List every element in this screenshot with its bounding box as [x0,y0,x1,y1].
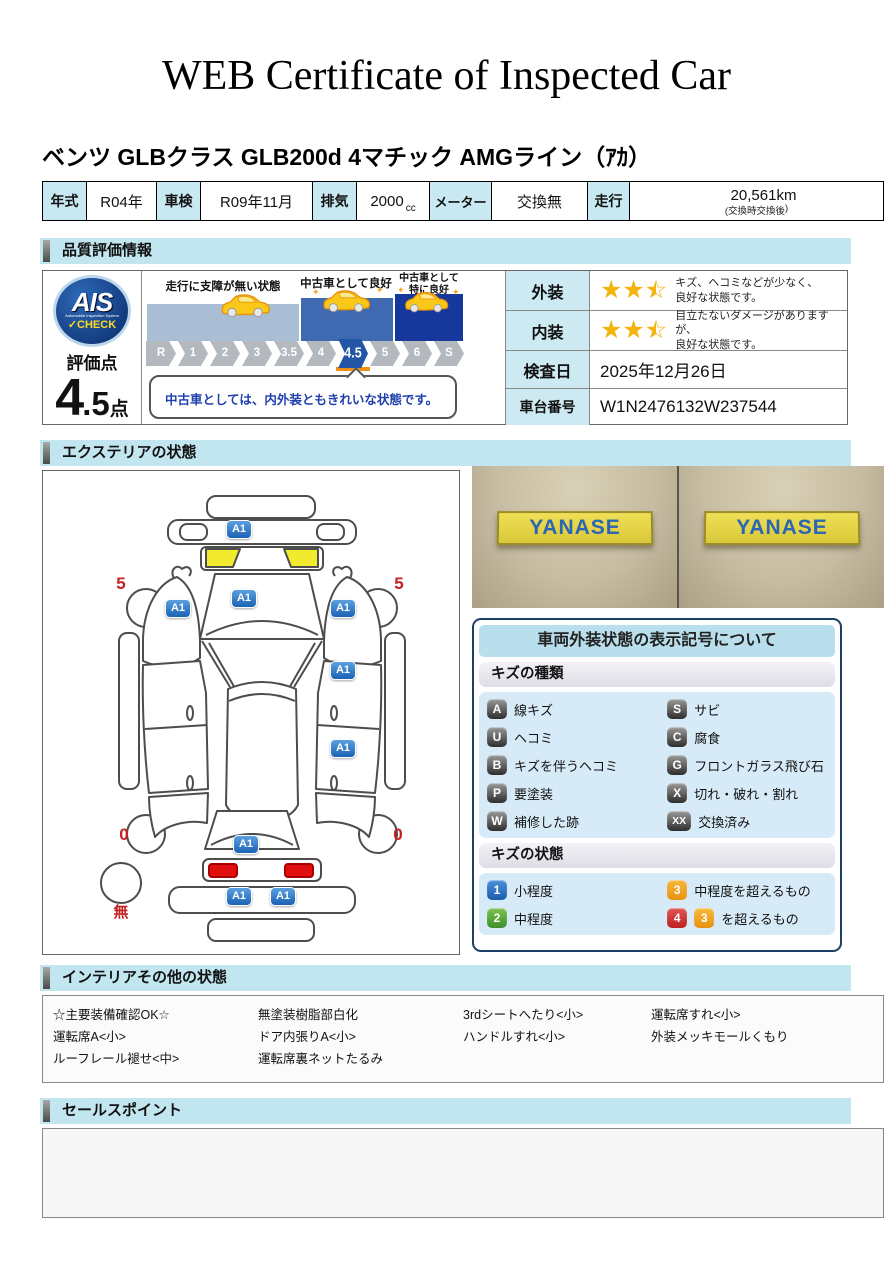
legend-state-list: 1小程度 3中程度を超えるもの 2中程度 43を超えるもの [479,873,835,935]
legend-state-header: キズの状態 [479,843,835,868]
car-icon [400,289,452,314]
sparkle-icon: ✦ [376,285,384,296]
legend-item: Uヘコミ [487,727,667,747]
car-icon [216,291,274,319]
rating-scale-graphic: 走行に支障が無い状態 中古車として良好 中古車として 特に良好 ✦ [142,271,506,424]
legend-item: X切れ・破れ・割れ [667,783,827,803]
score-unit: 点 [110,399,129,420]
certificate-page: WEB Certificate of Inspected Car ベンツ GLB… [0,0,893,1263]
interior-note: 外装メッキモールくもり [651,1026,789,1048]
displacement-unit: cc [406,203,416,214]
legend-item: W補修した跡 [487,811,667,831]
legend-item: 1小程度 [487,880,667,900]
spec-year-value: R04年 [87,182,157,220]
interior-note: ルーフレール褪せ<中> [53,1048,179,1070]
star-icon: ★ [622,318,644,343]
comment-bubble: 中古車としては、内外装ともきれいな状態です。 [149,375,457,419]
tick-3_5: 3.5 [274,341,304,366]
damage-legend-panel: 車両外装状態の表示記号について キズの種類 A線キズ Sサビ Uヘコミ C腐食 … [472,618,842,952]
interior-column: 無塗装樹脂部白化 ドア内張りA<小> 運転席裏ネットたるみ [258,1004,383,1070]
legend-item: 43を超えるもの [667,908,827,928]
interior-note: 無塗装樹脂部白化 [258,1004,383,1026]
ais-column: AIS Automobile Inspection System ✓CHECK … [43,271,142,424]
damage-code-badge: G [667,755,687,775]
star-icon: ★ [622,278,644,303]
exterior-stars: ★ ★ ★☆ [600,278,667,303]
sparkle-icon: ✦ [452,287,460,298]
damage-code-badge: X [667,783,687,803]
ais-logo-text: AIS [72,291,112,313]
severity-badge: 3 [694,908,714,928]
front-right-wheel-depth: 5 [394,574,403,593]
spec-mileage-value: 20,561km (交換時 交換後 ) [630,182,883,220]
tick-2: 2 [210,341,240,366]
spec-shaken-label: 車検 [157,182,201,220]
section-header-exterior: エクステリアの状態 [40,440,851,466]
dealer-photo: YANASE [472,466,677,608]
dealer-photo-pair: YANASE YANASE [472,466,884,608]
damage-code-badge: U [487,727,507,747]
damage-marker-left-fender: A1 [165,599,191,618]
section-title: 品質評価情報 [40,238,851,264]
page-title: WEB Certificate of Inspected Car [0,52,893,100]
tick-4: 4 [306,341,336,366]
quality-eval-box: AIS Automobile Inspection System ✓CHECK … [42,270,848,425]
car-schematic: 5 5 0 0 無 [43,471,461,956]
vehicle-title: ベンツ GLBクラス GLB200d 4マチック AMGライン（ｱｶ） [42,138,651,172]
section-title: エクステリアの状態 [40,440,851,466]
spec-table: 年式 R04年 車検 R09年11月 排気 2000 cc メーター 交換無 走… [42,181,884,221]
sparkle-icon: ✦ [312,287,320,298]
damage-marker-rear-window: A1 [233,835,259,854]
star-icon: ★ [600,318,622,343]
spec-mileage-label: 走行 [588,182,630,220]
severity-badge: 4 [667,908,687,928]
legend-kind-header: キズの種類 [479,662,835,687]
interior-column: ☆主要装備確認OK☆ 運転席A<小> ルーフレール褪せ<中> [53,1004,179,1070]
yanase-sign: YANASE [496,512,653,546]
interior-note: ドア内張りA<小> [258,1026,383,1048]
row-interior-rating: 内装 ★ ★ ★☆ 目立たないダメージがありますが、 良好な状態です。 [506,311,847,351]
damage-marker-right-rear-quarter: A1 [330,739,356,758]
car-icon [318,287,374,314]
sales-point-box [42,1128,884,1218]
score-int: 4 [55,369,82,427]
damage-marker-rear-bumper-left: A1 [226,887,252,906]
vin-value: W1N2476132W237544 [590,389,847,425]
star-half-icon: ★☆ [645,318,667,343]
legend-item: C腐食 [667,727,827,747]
inspection-date-value: 2025年12月26日 [590,351,847,388]
interior-note: 運転席すれ<小> [651,1004,789,1026]
damage-code-badge: W [487,811,507,831]
section-header-sales: セールスポイント [40,1098,851,1124]
section-header-quality: 品質評価情報 [40,238,851,264]
spec-shaken-value: R09年11月 [201,182,313,220]
spec-displacement-value: 2000 cc [357,182,430,220]
section-header-interior: インテリアその他の状態 [40,965,851,991]
legend-item: 2中程度 [487,908,667,928]
row-vin: 車台番号 W1N2476132W237544 [506,389,847,425]
interior-note: 運転席A<小> [53,1026,179,1048]
damage-code-badge: S [667,699,687,719]
mileage-note: (交換時 交換後 ) [721,203,792,218]
mileage-number: 20,561km [717,184,797,204]
yanase-sign: YANASE [703,512,860,546]
exterior-rating-text: キズ、ヘコミなどが少なく、 良好な状態です。 [675,276,818,305]
interior-note: 3rdシートへたり<小> [463,1004,583,1026]
interior-column: 運転席すれ<小> 外装メッキモールくもり [651,1004,789,1048]
legend-item: P要塗装 [487,783,667,803]
mileage-note-close: ) [785,203,788,217]
damage-marker-right-fender: A1 [330,599,356,618]
inspection-date-label: 検査日 [506,351,590,388]
damage-marker-rear-bumper-right: A1 [270,887,296,906]
legend-item: A線キズ [487,699,667,719]
interior-note: ☆主要装備確認OK☆ [53,1004,179,1026]
score-dec: .5 [82,385,110,422]
interior-rating-text: 目立たないダメージがありますが、 良好な状態です。 [675,309,847,352]
severity-badge: 3 [667,880,687,900]
tick-R: R [146,341,176,366]
tick-1: 1 [178,341,208,366]
exterior-label: 外装 [506,271,590,310]
spare-tire-status: 無 [113,903,128,921]
interior-note: ハンドルすれ<小> [463,1026,583,1048]
row-inspection-date: 検査日 2025年12月26日 [506,351,847,389]
front-left-wheel-depth: 5 [116,574,125,593]
star-icon: ★ [600,278,622,303]
damage-marker-windshield: A1 [231,589,257,608]
legend-item: 3中程度を超えるもの [667,880,827,900]
mileage-note-mid: 交換後 [756,203,785,217]
legend-kind-list: A線キズ Sサビ Uヘコミ C腐食 Bキズを伴うヘコミ Gフロントガラス飛び石 … [479,692,835,838]
spec-meter-value: 交換無 [492,182,588,220]
spec-year-label: 年式 [43,182,87,220]
spec-meter-label: メーター [430,182,492,220]
interior-condition-box: ☆主要装備確認OK☆ 運転席A<小> ルーフレール褪せ<中> 無塗装樹脂部白化 … [42,995,884,1083]
damage-marker-front-bumper: A1 [226,520,252,539]
spec-displacement-label: 排気 [313,182,357,220]
sparkle-icon: ✦ [397,285,405,296]
damage-code-badge: A [487,699,507,719]
damage-code-badge: P [487,783,507,803]
ais-check-icon: ✓CHECK [68,319,116,331]
interior-column: 3rdシートへたり<小> ハンドルすれ<小> [463,1004,583,1048]
tick-6: 6 [402,341,432,366]
legend-item: XX交換済み [667,811,827,831]
tick-3: 3 [242,341,272,366]
section-title: セールスポイント [40,1098,851,1124]
star-half-icon: ★☆ [645,278,667,303]
damage-code-badge: B [487,755,507,775]
section-title: インテリアその他の状態 [40,965,851,991]
comment-text: 中古車としては、内外装ともきれいな状態です。 [165,389,438,408]
legend-item: Bキズを伴うヘコミ [487,755,667,775]
interior-note: 運転席裏ネットたるみ [258,1048,383,1070]
tick-5: 5 [370,341,400,366]
damage-code-badge: C [667,727,687,747]
displacement-number: 2000 [370,193,403,210]
mileage-note-open: (交換時 [725,203,757,217]
interior-stars: ★ ★ ★☆ [600,318,667,343]
rear-right-wheel-depth: 0 [393,825,402,844]
damage-code-badge: XX [667,811,691,831]
rear-left-wheel-depth: 0 [119,825,128,844]
exterior-diagram-box: 5 5 0 0 無 A1 A1 A1 A1 A1 A1 A1 A1 A1 [42,470,460,955]
tick-S: S [434,341,464,366]
ais-logo: AIS Automobile Inspection System ✓CHECK [53,275,131,347]
vin-label: 車台番号 [506,389,590,425]
rating-tick-bar: R 1 2 3 3.5 4 4.5 5 6 S [146,341,464,366]
tick-4_5-active: 4.5 [338,339,368,369]
legend-item: Sサビ [667,699,827,719]
legend-item: Gフロントガラス飛び石 [667,755,827,775]
dealer-photo: YANASE [679,466,884,608]
severity-badge: 2 [487,908,507,928]
severity-badge: 1 [487,880,507,900]
damage-marker-right-front-door: A1 [330,661,356,680]
interior-label: 内装 [506,311,590,350]
score-value: 4.5点 [55,372,128,424]
row-exterior-rating: 外装 ★ ★ ★☆ キズ、ヘコミなどが少なく、 良好な状態です。 [506,271,847,311]
legend-title: 車両外装状態の表示記号について [479,625,835,657]
